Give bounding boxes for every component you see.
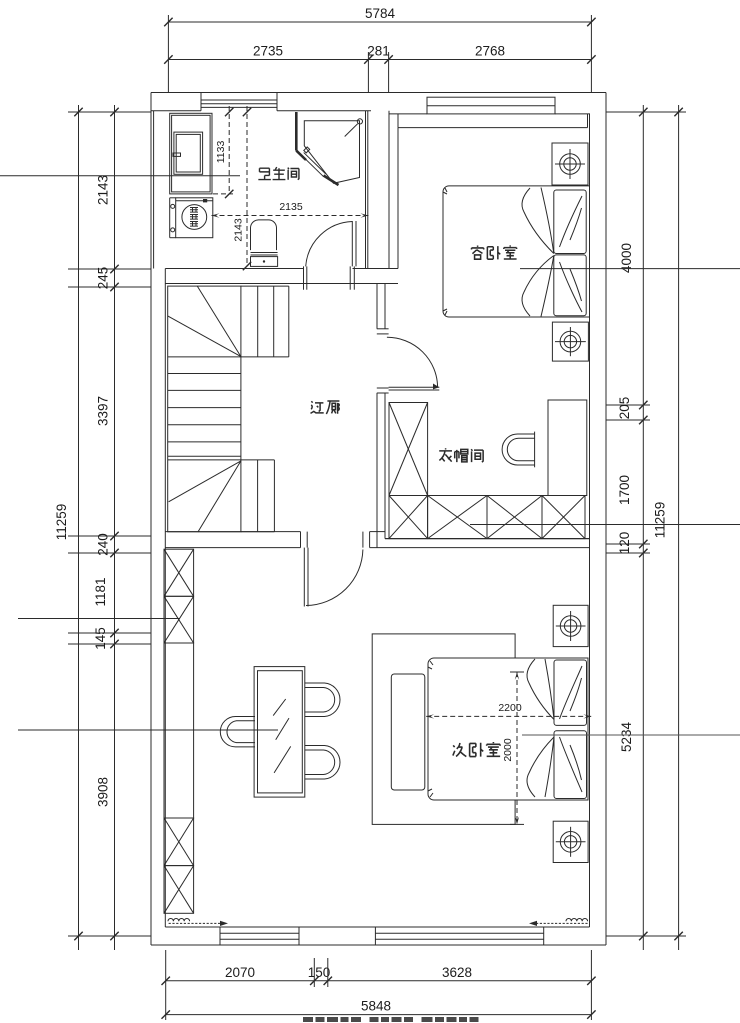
svg-text:11259: 11259 (653, 502, 668, 539)
svg-text:2143: 2143 (96, 175, 111, 205)
svg-text:2143: 2143 (233, 218, 245, 242)
svg-text:145: 145 (93, 627, 108, 650)
svg-text:205: 205 (617, 397, 632, 420)
svg-text:11259: 11259 (54, 504, 69, 541)
svg-text:5848: 5848 (361, 999, 391, 1014)
svg-text:245: 245 (96, 267, 111, 290)
svg-text:3628: 3628 (442, 965, 472, 980)
svg-text:2768: 2768 (475, 44, 505, 59)
svg-text:2200: 2200 (498, 702, 522, 714)
svg-text:5234: 5234 (619, 721, 634, 752)
svg-text:2070: 2070 (225, 965, 255, 980)
svg-text:2135: 2135 (279, 201, 303, 213)
svg-text:120: 120 (617, 532, 632, 555)
svg-text:1133: 1133 (215, 141, 227, 164)
svg-text:240: 240 (96, 533, 111, 556)
svg-text:281: 281 (367, 44, 390, 59)
svg-text:1700: 1700 (617, 475, 632, 505)
svg-text:3397: 3397 (96, 396, 111, 426)
svg-text:1181: 1181 (93, 577, 108, 606)
svg-text:150: 150 (308, 965, 331, 980)
svg-text:2735: 2735 (253, 44, 283, 59)
svg-text:5784: 5784 (365, 6, 396, 21)
svg-text:2000: 2000 (502, 738, 514, 762)
svg-text:3908: 3908 (96, 777, 111, 807)
